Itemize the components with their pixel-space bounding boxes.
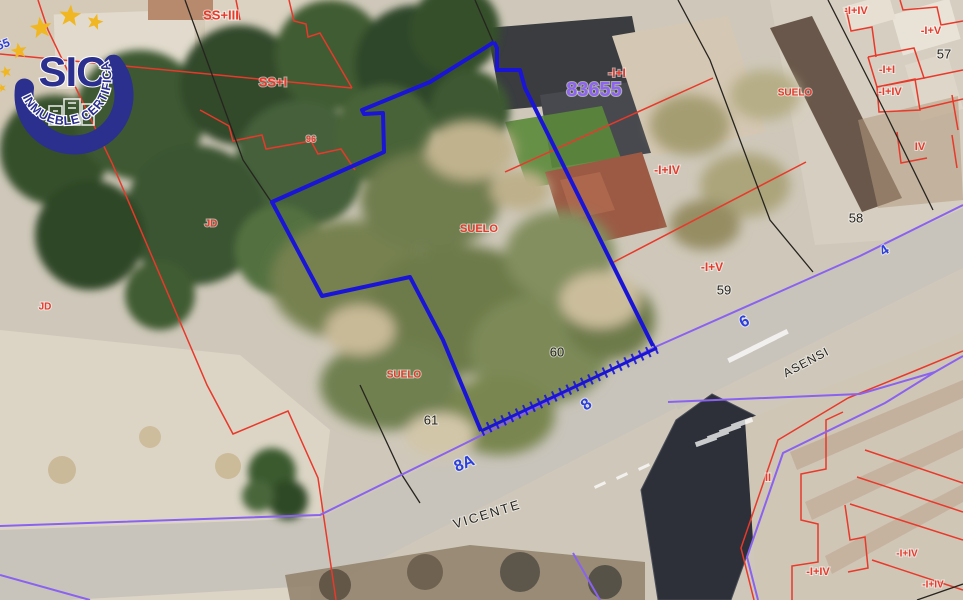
map-label-floors: -I+IV [806,566,830,578]
map-label-zone: JD [39,302,52,313]
map-label-zone: SUELO [778,88,813,99]
map-label-floors: -I+IV [878,86,902,98]
map-label-zone: JD [205,219,218,230]
map-label-floors: -I+IV [922,580,944,591]
map-label-zone: 96 [306,134,316,144]
map-label-zone: SUELO [460,223,498,235]
map-label-parcel-number: 59 [717,283,731,298]
map-label-floors: -I+IV [844,5,868,17]
map-label-floors: -I+IV [896,549,918,560]
map-label-parcel-number: 60 [550,345,564,360]
map-label-floors: SS+III [203,8,239,23]
sic-logo: SIC INMUEBLE CERTIFICADO [0,0,166,168]
map-label-parcel-number: 57 [937,47,951,62]
map-label-floors: -I+V [921,25,942,37]
map-label-parcel-number: 61 [424,413,438,428]
map-label-floors: SS+I [259,75,288,90]
map-label-floors: IV [915,141,926,153]
logo-brand-text: SIC [38,48,106,95]
map-label-floors: -I+IV [654,163,680,177]
map-label-parcel-reference: 83655 [566,79,622,101]
cadastral-aerial-map: SS+IIISS+I96JDJDSUELOSUELOSUELO-I+I83655… [0,0,963,600]
map-label-floors: -I+V [701,260,723,274]
map-label-zone: SUELO [387,370,422,381]
map-label-parcel-number: 58 [849,211,863,226]
map-label-floors: II [765,472,771,484]
map-label-floors: -I+I [879,64,895,76]
